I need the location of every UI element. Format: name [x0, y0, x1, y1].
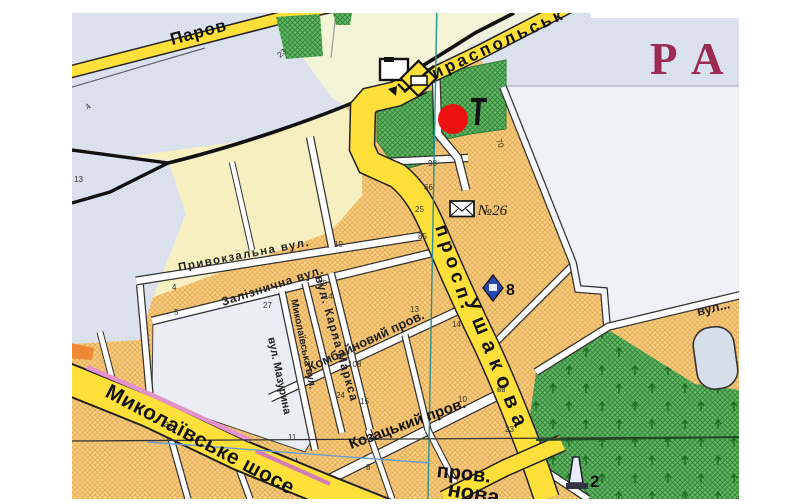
svg-text:А: А	[691, 34, 724, 84]
svg-text:108: 108	[348, 360, 362, 369]
svg-text:25: 25	[415, 205, 424, 214]
svg-text:27: 27	[263, 301, 272, 310]
svg-text:15: 15	[360, 397, 369, 406]
svg-text:13: 13	[410, 305, 419, 314]
svg-text:9: 9	[334, 332, 339, 341]
svg-text:№26: №26	[477, 203, 508, 219]
svg-text:85: 85	[418, 232, 427, 241]
svg-text:66: 66	[424, 183, 433, 192]
svg-text:8: 8	[506, 282, 515, 299]
svg-text:98: 98	[428, 159, 437, 168]
svg-text:вв: вв	[497, 385, 506, 394]
svg-text:Р: Р	[650, 34, 678, 84]
svg-text:19: 19	[334, 240, 343, 249]
svg-text:10: 10	[458, 395, 467, 404]
svg-text:13: 13	[74, 175, 83, 184]
svg-text:11: 11	[288, 433, 297, 442]
svg-text:8: 8	[366, 463, 371, 472]
svg-text:2: 2	[590, 472, 599, 491]
svg-text:114: 114	[320, 292, 333, 301]
svg-text:4: 4	[172, 283, 177, 292]
svg-text:5: 5	[174, 308, 179, 317]
svg-text:23: 23	[505, 425, 514, 434]
svg-text:18: 18	[318, 279, 327, 288]
svg-text:14: 14	[452, 320, 461, 329]
svg-text:24: 24	[336, 391, 345, 400]
